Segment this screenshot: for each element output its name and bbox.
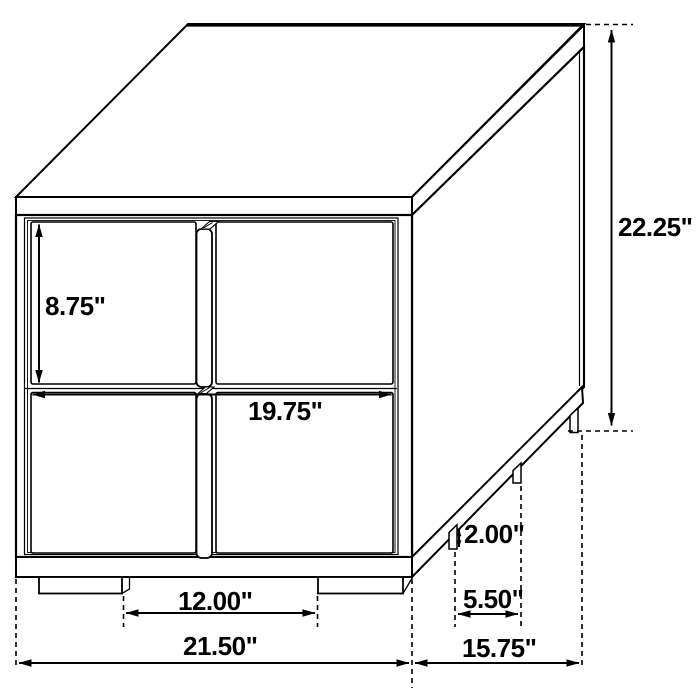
dimension-front-leg-spacing: 12.00": [124, 586, 318, 627]
dimension-leg-height: 2.00": [459, 519, 524, 549]
front-base-rail: [16, 557, 412, 577]
dim-label-front-leg-spacing: 12.00": [178, 586, 252, 616]
front-leg-left: [39, 577, 122, 594]
handle-bar-bottom: [197, 394, 213, 558]
furniture-dimension-diagram: 8.75" 19.75" 22.25" 2.00" 5.50": [0, 0, 700, 700]
drawer-panel-bottom-left: [31, 393, 196, 554]
dim-label-leg-height: 2.00": [464, 519, 524, 549]
dimension-overall-height: 22.25": [568, 25, 692, 432]
dim-label-drawer-front-height: 8.75": [45, 291, 105, 321]
drawer-panel-top-right: [216, 222, 393, 384]
front-leg-right: [318, 577, 403, 594]
dim-label-overall-height: 22.25": [618, 212, 692, 242]
dim-label-drawer-front-width: 19.75": [248, 396, 322, 426]
diagram-canvas: 8.75" 19.75" 22.25" 2.00" 5.50": [0, 0, 700, 700]
dim-label-side-leg-spacing: 5.50": [463, 584, 523, 614]
handle-bar-top: [197, 229, 213, 387]
dim-label-overall-depth: 15.75": [462, 633, 536, 663]
dim-label-overall-width: 21.50": [183, 631, 257, 661]
